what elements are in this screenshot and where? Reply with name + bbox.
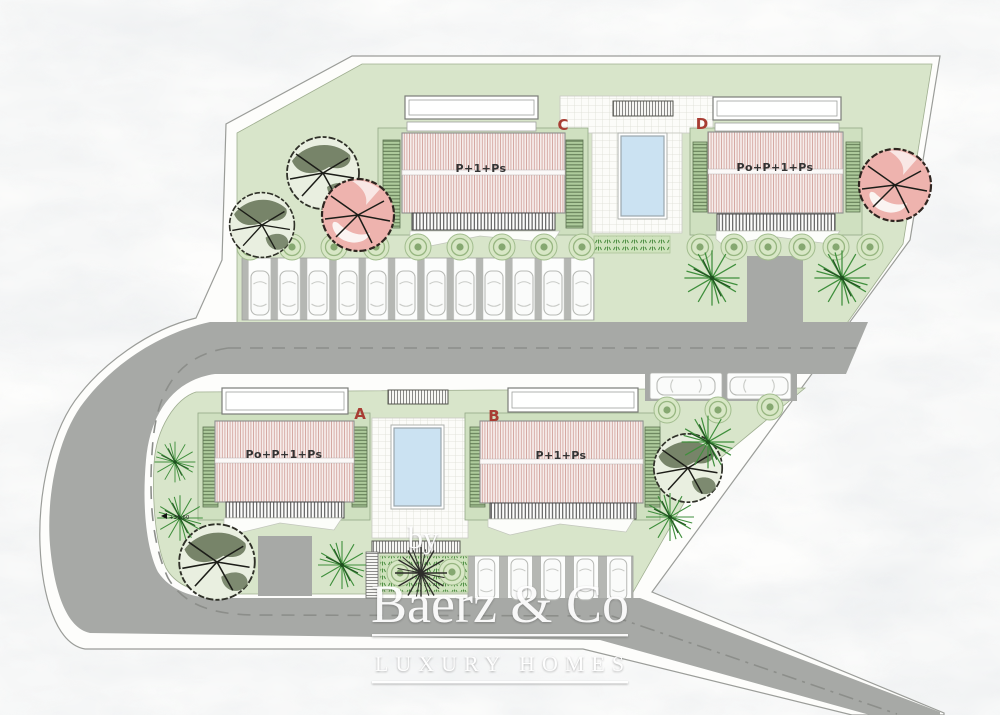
watermark-by: by [408,520,440,555]
building-letter-d: D [696,115,708,133]
car-icon [730,377,788,395]
building-floors-label: Po+P+1+Ps [736,161,813,174]
site-plan-page: P+1+Ps C Po+P+1+Ps D Po+P+1+Ps A [0,0,1000,715]
balcony-railing [226,502,344,518]
shrub-bed [594,236,670,253]
building-a: Po+P+1+Ps [198,388,370,534]
balcony-railing [412,213,555,230]
building-floors-label: P+1+Ps [456,162,507,175]
pergola-icon [846,142,860,212]
terrace-ledge [715,123,839,131]
balcony-railing [717,214,835,231]
driveway-top-right [747,256,803,326]
terrace-ledge [407,122,536,131]
swimming-pool [621,136,664,216]
svg-text:+35.60: +35.60 [169,515,190,521]
pink-tree-icon [859,149,931,221]
watermark-tagline: LUXURY HOMES [375,651,631,676]
roof-terrace-inner [512,392,634,408]
building-letter-c: C [557,116,568,134]
swimming-pool [394,428,441,506]
car-icon [657,377,715,395]
driveway-bottom-left [258,536,312,596]
pink-tree-icon [322,179,394,251]
building-letter-b: B [488,407,499,425]
roof-terrace-inner [409,100,534,115]
building-d: Po+P+1+Ps [690,97,862,247]
olive-tree-icon [230,193,295,258]
roof-terrace-inner [717,101,837,116]
balcony-railing [490,503,636,519]
pergola-icon [693,142,707,212]
watermark-rule-bottom [372,681,628,683]
watermark-brand: Baerz & Co [371,574,629,634]
building-floors-label: P+1+Ps [536,449,587,462]
bush-row-mid [654,394,783,423]
roof-terrace-inner [226,392,344,410]
building-letter-a: A [354,405,366,423]
watermark-rule-top [372,634,628,636]
site-plan-drawing: P+1+Ps C Po+P+1+Ps D Po+P+1+Ps A [0,0,1000,715]
pergola-icon [566,140,583,228]
stairs-icon [388,390,448,404]
building-floors-label: Po+P+1+Ps [245,448,322,461]
stairs-icon [613,101,673,116]
